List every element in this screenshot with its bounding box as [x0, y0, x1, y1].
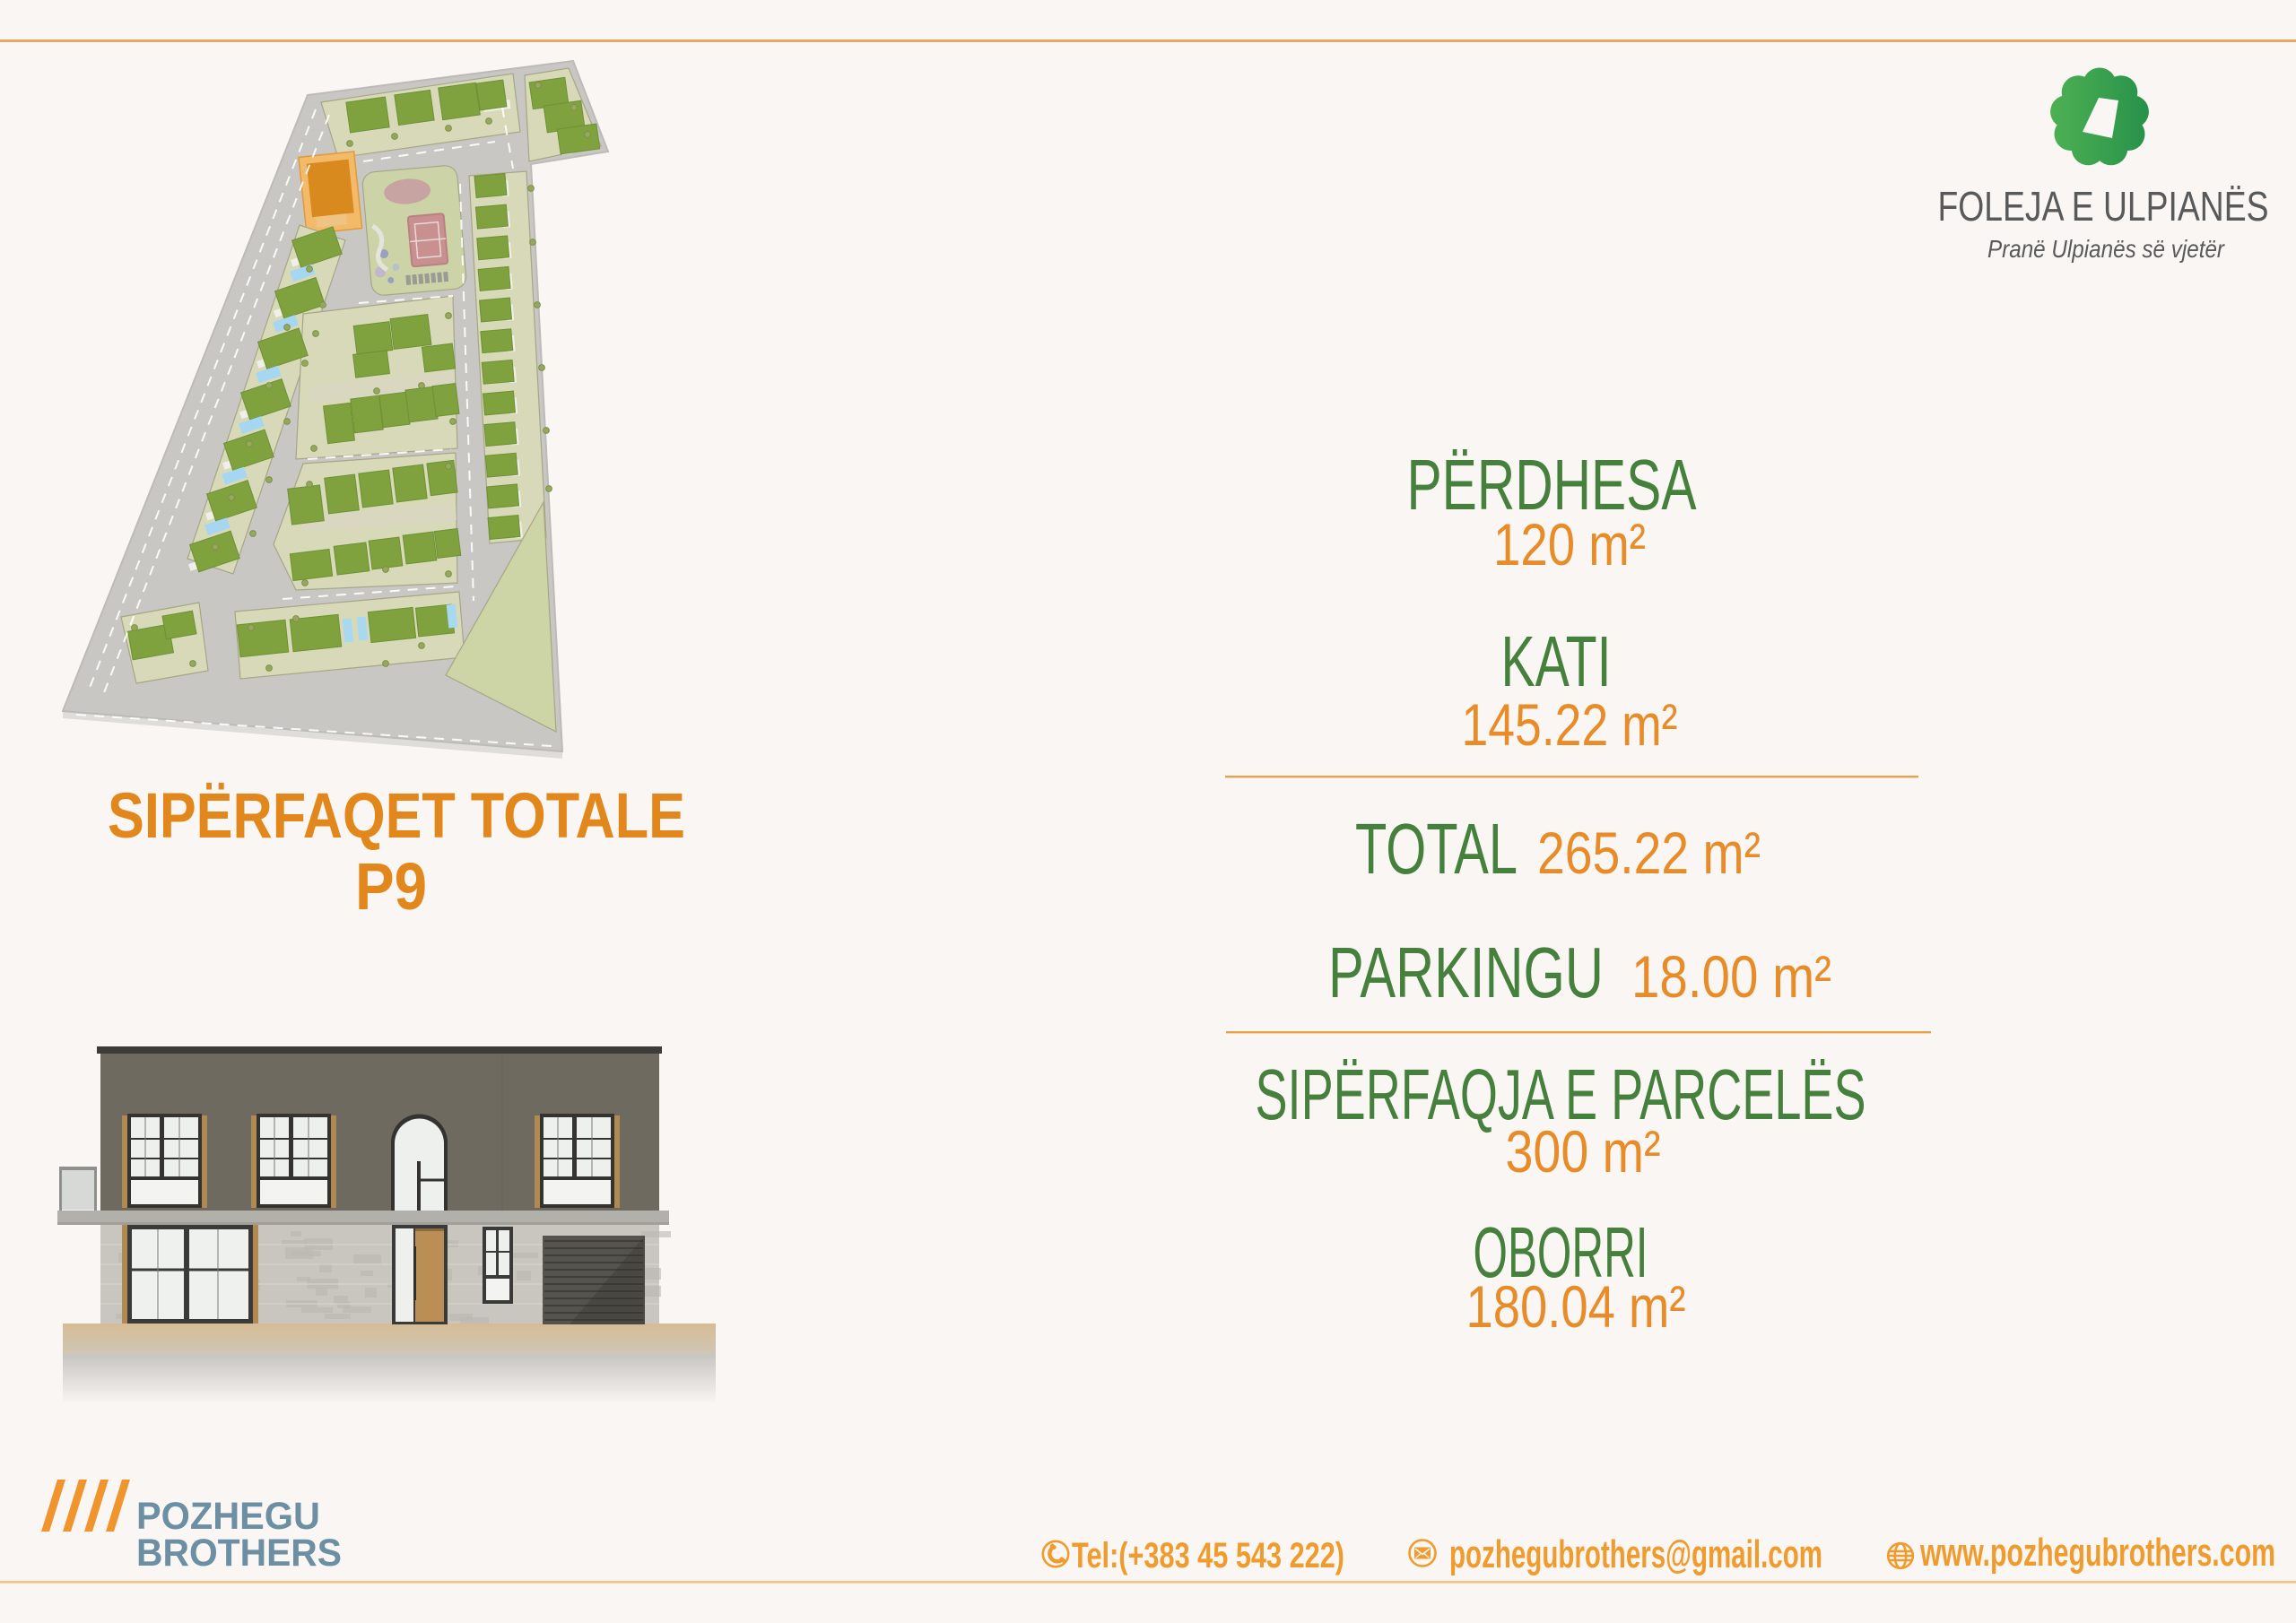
svg-text:TOTAL: TOTAL — [1355, 809, 1518, 889]
svg-text:Tel:(+383 45 543 222): Tel:(+383 45 543 222) — [1072, 1536, 1344, 1575]
svg-text:BROTHERS: BROTHERS — [136, 1532, 342, 1575]
svg-text:265.22 m²: 265.22 m² — [1537, 820, 1761, 886]
svg-text:FOLEJA E ULPIANËS: FOLEJA E ULPIANËS — [1938, 183, 2269, 230]
svg-text:SIPËRFAQET TOTALE: SIPËRFAQET TOTALE — [108, 781, 685, 852]
svg-text:145.22 m²: 145.22 m² — [1462, 691, 1678, 758]
svg-text:Pranë Ulpianës së vjetër: Pranë Ulpianës së vjetër — [1987, 235, 2225, 263]
svg-text:P9: P9 — [355, 849, 427, 924]
svg-text:300 m²: 300 m² — [1506, 1118, 1661, 1185]
svg-text:www.pozhegubrothers.com: www.pozhegubrothers.com — [1919, 1531, 2275, 1575]
svg-text:120 m²: 120 m² — [1493, 511, 1646, 577]
svg-text:pozhegubrothers@gmail.com: pozhegubrothers@gmail.com — [1449, 1532, 1822, 1576]
svg-text:18.00 m²: 18.00 m² — [1631, 943, 1831, 1010]
svg-text:KATI: KATI — [1501, 621, 1612, 701]
svg-text:180.04 m²: 180.04 m² — [1466, 1273, 1686, 1340]
svg-text:PARKINGU: PARKINGU — [1328, 933, 1604, 1012]
